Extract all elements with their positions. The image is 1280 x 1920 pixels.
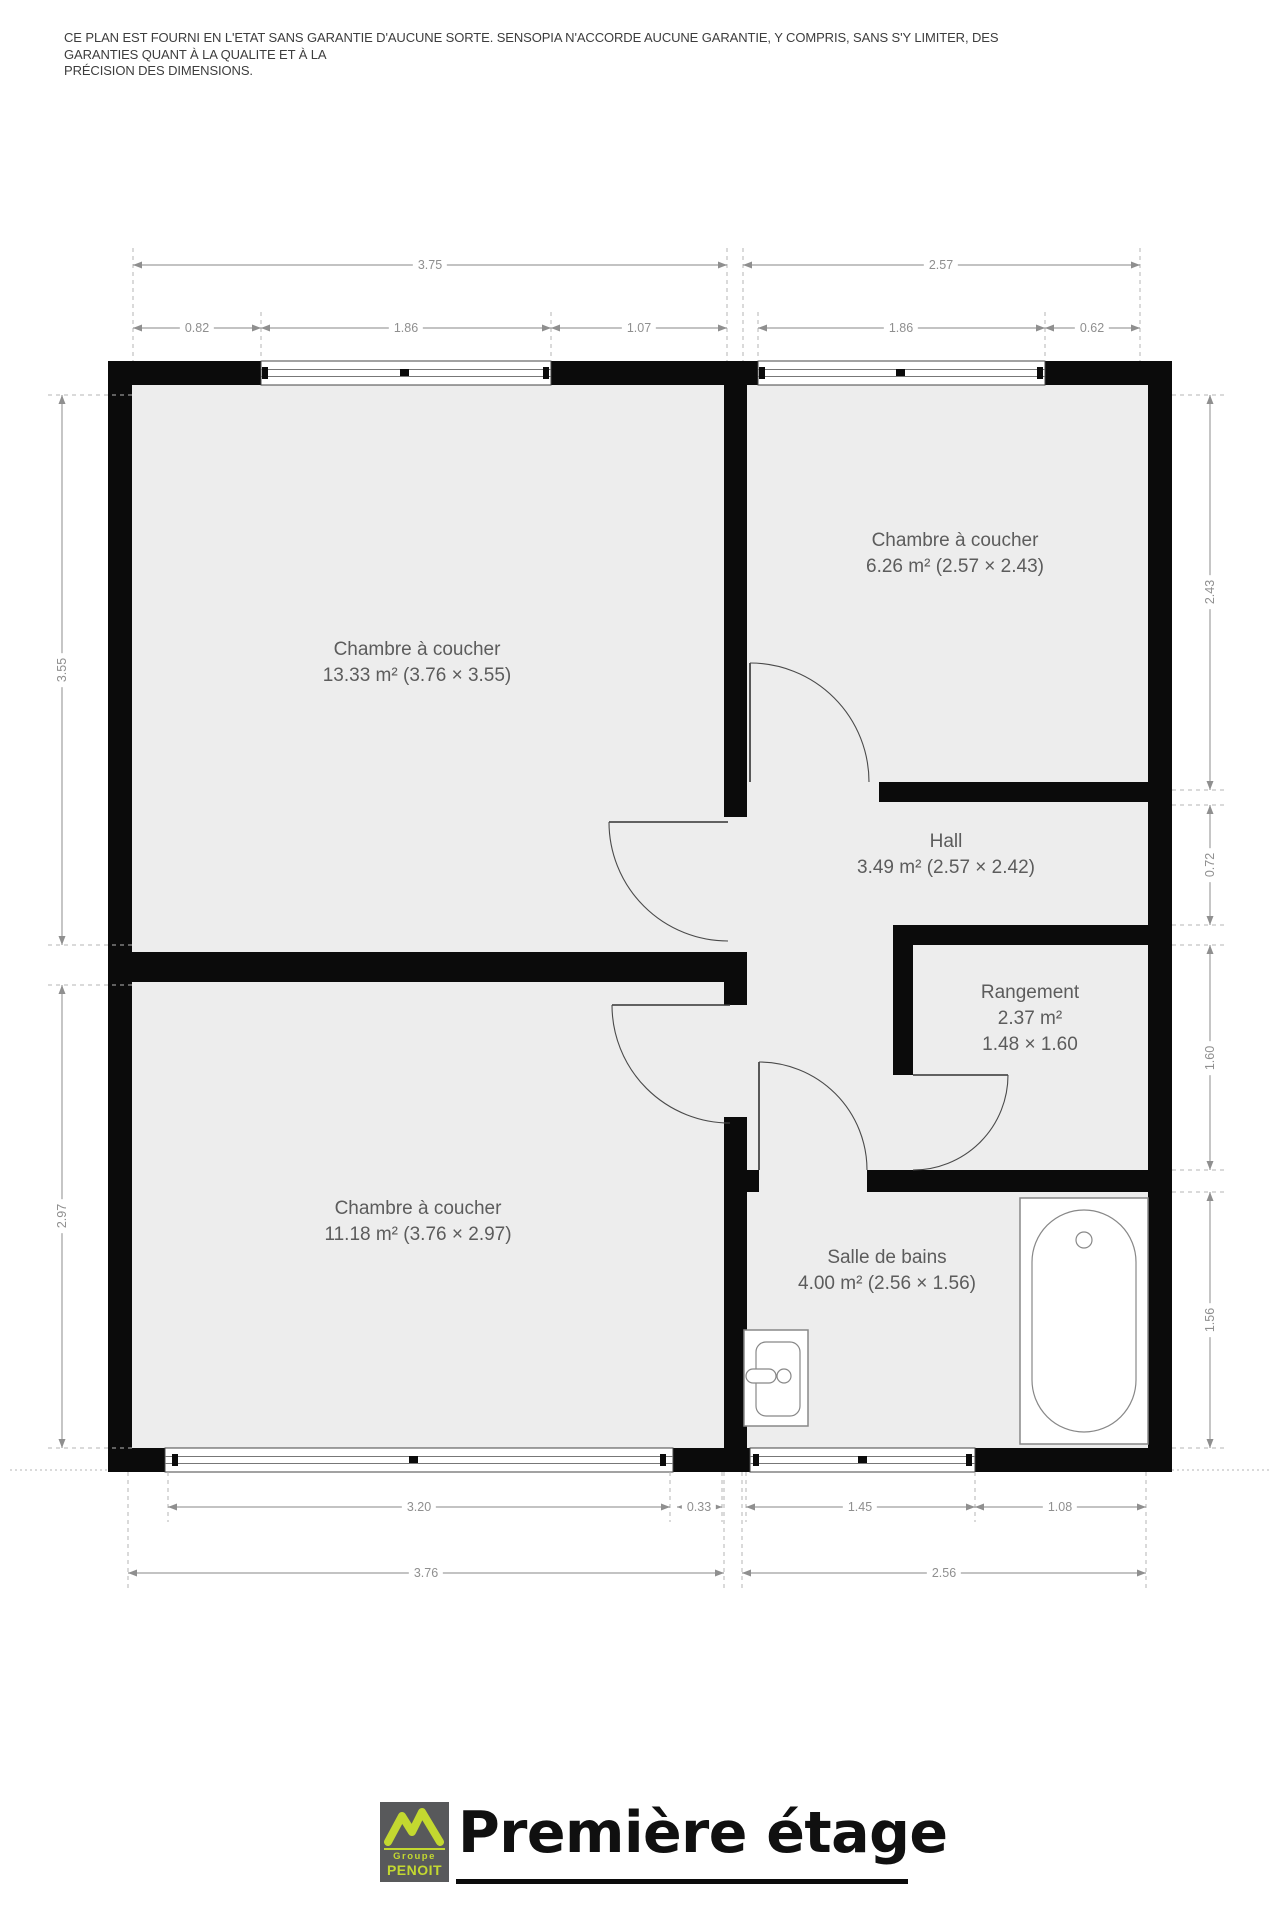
room-name: Rangement bbox=[981, 980, 1079, 1006]
dimension-label: 3.76 bbox=[409, 1566, 443, 1580]
dimension-label: 1.56 bbox=[1203, 1303, 1217, 1337]
dimension-label: 0.33 bbox=[682, 1500, 716, 1514]
dimension-label: 1.86 bbox=[884, 321, 918, 335]
window-top-right bbox=[758, 361, 1045, 385]
dimension-label: 2.56 bbox=[927, 1566, 961, 1580]
bathtub-icon bbox=[1020, 1198, 1148, 1444]
groupe-penoit-logo: Groupe PENOIT bbox=[380, 1802, 449, 1882]
room-name: Chambre à coucher bbox=[323, 637, 512, 663]
dimension-label: 2.97 bbox=[55, 1199, 69, 1233]
logo-name-text: PENOIT bbox=[380, 1862, 449, 1878]
room-name: Chambre à coucher bbox=[324, 1196, 511, 1222]
dimension-label: 2.57 bbox=[924, 258, 958, 272]
room-label-bedroom-top-right: Chambre à coucher 6.26 m² (2.57 × 2.43) bbox=[866, 528, 1044, 580]
dimension-label: 3.20 bbox=[402, 1500, 436, 1514]
dimension-label: 0.62 bbox=[1075, 321, 1109, 335]
dimension-label: 3.55 bbox=[55, 653, 69, 687]
room-area: 2.37 m² bbox=[981, 1006, 1079, 1032]
dimension-label: 1.45 bbox=[843, 1500, 877, 1514]
room-dims: 1.48 × 1.60 bbox=[981, 1032, 1079, 1058]
window-bottom-right bbox=[750, 1448, 975, 1472]
window-bottom-left bbox=[165, 1448, 673, 1472]
title-underline bbox=[456, 1879, 908, 1884]
logo-mountains-icon bbox=[380, 1804, 449, 1846]
room-label-bedroom-bottom-left: Chambre à coucher 11.18 m² (3.76 × 2.97) bbox=[324, 1196, 511, 1248]
room-area: 6.26 m² (2.57 × 2.43) bbox=[866, 554, 1044, 580]
dimension-label: 2.43 bbox=[1203, 575, 1217, 609]
room-label-hall: Hall 3.49 m² (2.57 × 2.42) bbox=[857, 829, 1035, 881]
room-name: Chambre à coucher bbox=[866, 528, 1044, 554]
sink-icon bbox=[744, 1330, 808, 1426]
room-area: 13.33 m² (3.76 × 3.55) bbox=[323, 663, 512, 689]
logo-group-text: Groupe bbox=[384, 1848, 445, 1862]
dimension-label: 0.72 bbox=[1203, 848, 1217, 882]
dimension-label: 1.60 bbox=[1203, 1041, 1217, 1075]
room-area: 3.49 m² (2.57 × 2.42) bbox=[857, 855, 1035, 881]
room-name: Salle de bains bbox=[798, 1245, 976, 1271]
floorplan-page: CE PLAN EST FOURNI EN L'ETAT SANS GARANT… bbox=[0, 0, 1280, 1920]
dimension-label: 0.82 bbox=[180, 321, 214, 335]
dimension-label: 1.86 bbox=[389, 321, 423, 335]
window-top-left bbox=[261, 361, 551, 385]
room-label-bedroom-top-left: Chambre à coucher 13.33 m² (3.76 × 3.55) bbox=[323, 637, 512, 689]
floorplan-drawing bbox=[0, 0, 1280, 1920]
room-name: Hall bbox=[857, 829, 1035, 855]
room-label-storage: Rangement 2.37 m² 1.48 × 1.60 bbox=[981, 980, 1079, 1058]
dimension-label: 3.75 bbox=[413, 258, 447, 272]
dimension-label: 1.08 bbox=[1043, 1500, 1077, 1514]
dimension-label: 1.07 bbox=[622, 321, 656, 335]
room-label-bathroom: Salle de bains 4.00 m² (2.56 × 1.56) bbox=[798, 1245, 976, 1297]
floor-title: Première étage bbox=[458, 1800, 948, 1866]
room-area: 11.18 m² (3.76 × 2.97) bbox=[324, 1222, 511, 1248]
room-area: 4.00 m² (2.56 × 1.56) bbox=[798, 1271, 976, 1297]
